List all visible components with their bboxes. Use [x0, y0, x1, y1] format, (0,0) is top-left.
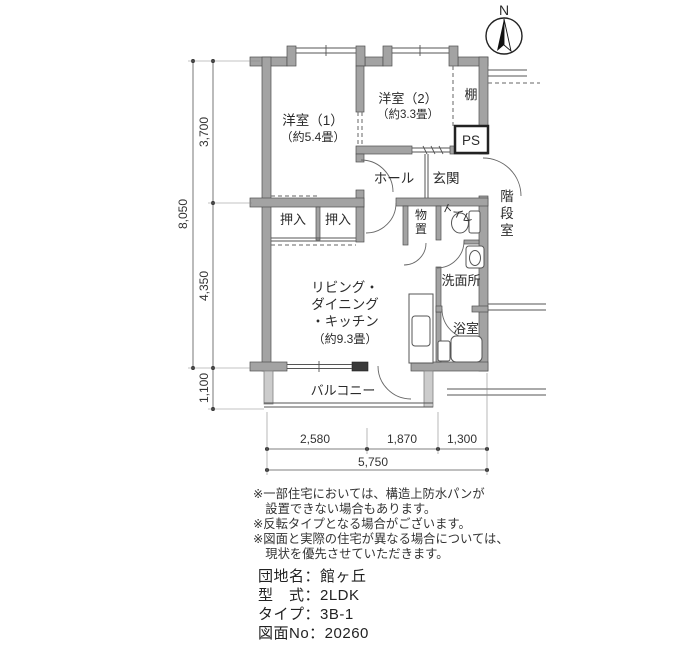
door-hall-ldk — [366, 203, 396, 233]
note-line-2: 設置できない場合もあります。 — [253, 501, 436, 516]
dim-left-lower: 4,350 — [197, 271, 211, 301]
floor-plan-drawing: N — [0, 0, 700, 650]
info-danchi-name: 団地名：館ヶ丘 — [258, 568, 367, 585]
label-kaidan-2: 段 — [500, 206, 514, 221]
label-hall: ホール — [374, 171, 415, 186]
dim-bottom-1: 2,580 — [300, 432, 330, 446]
label-yoshitsu1-size: （約5.4畳） — [281, 129, 346, 144]
dim-bottom-3: 1,300 — [447, 432, 477, 446]
dim-bottom-total: 5,750 — [358, 455, 388, 469]
north-label: N — [499, 2, 509, 18]
compass-needle-icon — [497, 19, 504, 51]
floor-plan-page: N — [0, 0, 700, 650]
label-ldk-3: ・キッチン — [311, 314, 379, 329]
balcony-partition — [424, 371, 433, 407]
label-ldk-1: リビング・ — [311, 280, 379, 295]
note-line-5: 現状を優先させていただきます。 — [253, 547, 449, 561]
door-balcony — [378, 366, 411, 399]
label-monooki-2: 置 — [415, 222, 427, 236]
info-type: タイプ：3B-1 — [258, 606, 354, 623]
label-oshiire-right: 押入 — [325, 212, 351, 227]
info-zumen-no: 図面No：20260 — [258, 625, 369, 642]
label-senmenjo: 洗面所 — [441, 273, 480, 288]
label-ldk-size: （約9.3畳） — [313, 331, 378, 346]
label-oshiire-left: 押入 — [280, 212, 306, 227]
compass-needle-outline-icon — [504, 19, 511, 51]
note-line-3: ※反転タイプとなる場合がございます。 — [253, 516, 471, 531]
notes-block: ※一部住宅においては、構造上防水パンが 設置できない場合もあります。 ※反転タイ… — [253, 486, 509, 561]
info-katashiki: 型 式：2LDK — [258, 587, 360, 604]
label-yokushitsu: 浴室 — [453, 321, 479, 336]
north-compass: N — [486, 2, 522, 54]
label-shelf: 棚 — [464, 87, 477, 102]
door-storage — [404, 243, 426, 265]
note-line-1: ※一部住宅においては、構造上防水パンが — [253, 486, 485, 501]
kitchen-counter-icon — [409, 294, 433, 363]
label-pipe-space: PS — [462, 133, 480, 148]
window-ldk-south — [287, 361, 352, 372]
dim-left-upper: 3,700 — [197, 117, 211, 147]
bathtub-icon — [438, 336, 482, 362]
label-kaidan-3: 室 — [500, 222, 514, 238]
wall-pier — [352, 362, 368, 371]
label-ldk-2: ダイニング — [311, 297, 379, 312]
window-yoshitsu1 — [296, 45, 356, 56]
dim-left-total: 8,050 — [176, 199, 190, 229]
door-washroom — [437, 241, 464, 268]
balcony-left-wall — [264, 371, 273, 404]
dim-left-balcony: 1,100 — [197, 373, 211, 403]
sliding-door-yoshitsu2 — [412, 146, 450, 154]
label-yoshitsu1: 洋室（1） — [282, 112, 344, 128]
label-yoshitsu2-size: （約3.3畳） — [377, 107, 439, 121]
note-line-4: ※図面と実際の住宅が異なる場合については、 — [253, 531, 509, 546]
window-yoshitsu2 — [392, 45, 449, 56]
info-block: 団地名：館ヶ丘 型 式：2LDK タイプ：3B-1 図面No：20260 — [258, 568, 369, 642]
label-genkan: 玄関 — [433, 170, 460, 186]
label-yoshitsu2: 洋室（2） — [378, 91, 437, 106]
washbasin-icon — [466, 246, 484, 268]
label-monooki-1: 物 — [415, 208, 427, 222]
dim-bottom-2: 1,870 — [387, 432, 417, 446]
closet-divider — [316, 207, 320, 240]
label-balcony: バルコニー — [311, 383, 376, 398]
label-kaidan-1: 階 — [500, 189, 514, 204]
